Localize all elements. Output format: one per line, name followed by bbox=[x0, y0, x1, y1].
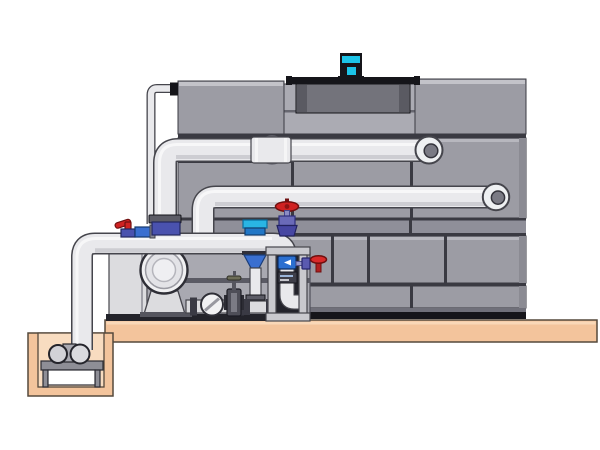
sump-pump bbox=[49, 344, 90, 364]
red-handwheel-side bbox=[311, 256, 327, 264]
frame-bottom-beam bbox=[266, 313, 310, 321]
pump-inlet-center bbox=[153, 259, 176, 282]
frame-column-left bbox=[268, 255, 276, 315]
shelf-leg-right bbox=[95, 370, 100, 387]
coupling-ridge bbox=[255, 138, 258, 162]
motor-cyan-band bbox=[342, 56, 360, 63]
horizontal-seam bbox=[178, 134, 526, 138]
slab-highlight bbox=[107, 322, 596, 325]
block-top-highlight bbox=[179, 82, 283, 86]
frame-top-beam bbox=[266, 247, 310, 255]
fan-shroud bbox=[296, 84, 410, 113]
tap-stem bbox=[232, 280, 236, 290]
fan-assembly bbox=[286, 53, 420, 113]
diffuser-drop-pipe bbox=[250, 268, 261, 298]
tap-top bbox=[233, 271, 236, 276]
pipe-end-opening bbox=[491, 191, 504, 204]
shelf-leg-left bbox=[43, 370, 48, 387]
run-flange bbox=[244, 299, 250, 315]
diffuser-cap-base bbox=[245, 228, 265, 235]
tower-right-edge bbox=[519, 286, 526, 308]
riser-isolation-valve bbox=[152, 222, 180, 235]
cooling-tower-system-diagram: Technical illustration of a cooling towe… bbox=[0, 0, 600, 450]
thin-pipe-flange bbox=[170, 83, 178, 96]
tower-top-left-block bbox=[178, 81, 284, 134]
pipe-end-opening bbox=[424, 144, 438, 158]
panel-seam bbox=[367, 236, 370, 283]
panel-seam bbox=[444, 236, 447, 283]
globe-valve bbox=[276, 199, 299, 237]
manifold-flange bbox=[190, 298, 197, 316]
shroud-shade-right bbox=[399, 85, 409, 112]
ball-valve-body bbox=[121, 229, 135, 237]
block-top-highlight bbox=[416, 80, 525, 84]
valve-bonnet bbox=[279, 216, 295, 226]
gate-valve-center bbox=[231, 293, 237, 312]
shroud-shade-left bbox=[297, 85, 307, 112]
illustration-stage: Technical illustration of a cooling towe… bbox=[0, 0, 600, 450]
sump-pump-end-left bbox=[49, 345, 67, 363]
pump-foot bbox=[140, 312, 192, 317]
frame-label-plate bbox=[278, 272, 297, 283]
wheel-hub bbox=[285, 204, 290, 209]
coupling-ridge bbox=[284, 138, 287, 162]
label-line bbox=[280, 279, 289, 281]
tower-right-edge bbox=[519, 236, 526, 283]
panel-seam bbox=[409, 220, 412, 233]
sump-pump-end-right bbox=[71, 345, 90, 364]
label-line bbox=[280, 275, 293, 277]
tower-top-right-block bbox=[415, 79, 526, 134]
panel-seam bbox=[410, 286, 413, 308]
blue-fitting bbox=[135, 227, 151, 237]
shelf-opening bbox=[48, 370, 95, 385]
ground bbox=[28, 320, 597, 396]
valve-body bbox=[277, 226, 297, 237]
panel-seam bbox=[331, 236, 334, 283]
valve-fitting bbox=[302, 258, 310, 269]
tap-handle bbox=[227, 276, 241, 280]
tower-right-edge bbox=[519, 138, 526, 218]
motor-cyan-window bbox=[347, 67, 356, 75]
band-seam bbox=[178, 218, 526, 221]
diffuser-cyan-cap bbox=[243, 220, 267, 228]
